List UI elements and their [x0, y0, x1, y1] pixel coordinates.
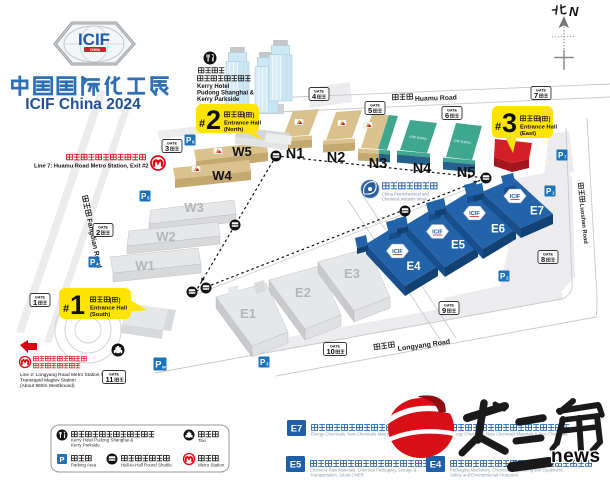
svg-text:E2: E2	[295, 285, 311, 300]
svg-text:P: P	[155, 360, 161, 370]
svg-text:3: 3	[165, 144, 169, 153]
svg-text:Chemical Industry Week: Chemical Industry Week	[382, 197, 428, 202]
svg-text:Transrapid Maglev Station: Transrapid Maglev Station	[20, 378, 76, 384]
svg-text:W1: W1	[135, 258, 155, 273]
svg-text:(: (	[110, 298, 112, 304]
svg-text:3: 3	[502, 108, 517, 138]
svg-text:W4: W4	[212, 168, 232, 183]
svg-text:E7: E7	[530, 206, 544, 218]
svg-text:P: P	[59, 455, 64, 464]
svg-text:N: N	[569, 4, 579, 19]
svg-text:Safety and Environmental Prote: Safety and Environmental Protection.	[450, 473, 519, 478]
svg-text:E4: E4	[406, 261, 421, 273]
svg-text:E6: E6	[491, 224, 505, 236]
svg-text:7: 7	[534, 91, 538, 100]
svg-text:11: 11	[106, 375, 114, 384]
svg-text:Metro Station: Metro Station	[198, 463, 225, 468]
svg-text:1: 1	[70, 290, 85, 320]
svg-text:E4: E4	[430, 460, 442, 471]
svg-text:Huamu Road: Huamu Road	[415, 95, 457, 103]
svg-text:#: #	[495, 121, 501, 133]
svg-text:): )	[549, 117, 551, 123]
svg-text:(East): (East)	[520, 131, 536, 137]
svg-text:W3: W3	[184, 200, 204, 215]
svg-text:E3: E3	[344, 266, 360, 281]
svg-text:W2: W2	[156, 229, 176, 244]
svg-text:5: 5	[368, 106, 372, 115]
svg-text:): )	[119, 298, 121, 304]
svg-text:Kerry Parkside: Kerry Parkside	[71, 443, 100, 448]
svg-text:Pudong Shanghai &: Pudong Shanghai &	[197, 91, 255, 97]
svg-text:E7: E7	[291, 424, 303, 435]
svg-text:#: #	[63, 303, 69, 315]
svg-text:2: 2	[96, 228, 100, 237]
svg-text:P: P	[546, 187, 551, 196]
svg-text:W5: W5	[232, 144, 252, 159]
svg-text:P: P	[558, 151, 563, 160]
svg-text:E1: E1	[240, 306, 256, 321]
svg-text:Taxi: Taxi	[198, 438, 206, 443]
svg-text:): )	[253, 113, 255, 119]
svg-text:(About 960m Westbound): (About 960m Westbound)	[20, 383, 75, 389]
svg-text:2: 2	[206, 105, 221, 135]
svg-text:w: w	[161, 365, 166, 370]
svg-text:E5: E5	[290, 460, 302, 471]
svg-text:6: 6	[445, 111, 449, 120]
svg-text:P: P	[260, 358, 265, 367]
svg-text:1: 1	[33, 298, 37, 307]
svg-text:E5: E5	[451, 240, 466, 252]
svg-text:N4: N4	[413, 161, 432, 177]
svg-text:(South): (South)	[90, 312, 110, 318]
svg-text:Entrance Hall: Entrance Hall	[520, 125, 557, 131]
svg-text:P: P	[90, 258, 95, 267]
svg-text:ICIF China 2024: ICIF China 2024	[25, 96, 141, 113]
svg-text:Transportation, Smart CMER: Transportation, Smart CMER	[310, 473, 364, 478]
svg-text:N2: N2	[327, 150, 346, 166]
svg-text:(North): (North)	[224, 127, 243, 133]
svg-text:P: P	[500, 272, 505, 281]
svg-text:Hall-to-Hall Round Shuttle: Hall-to-Hall Round Shuttle	[121, 463, 172, 468]
svg-text:N3: N3	[369, 156, 388, 172]
svg-text:Entrance Hall: Entrance Hall	[224, 121, 261, 127]
svg-text:N1: N1	[286, 146, 305, 162]
svg-text:Energy Chemicals, New Chemical: Energy Chemicals, New Chemicals Material…	[450, 432, 568, 437]
svg-text:(: (	[244, 113, 246, 119]
svg-text:10: 10	[327, 347, 335, 356]
svg-text:Line 7: Huamu Road Metro Stati: Line 7: Huamu Road Metro Station, Exit #…	[34, 164, 148, 170]
svg-text:Kerry Parkside: Kerry Parkside	[197, 97, 240, 103]
svg-text:8: 8	[541, 255, 545, 264]
svg-text:ICIF: ICIF	[78, 30, 110, 49]
svg-text:Kerry Hotel: Kerry Hotel	[197, 84, 230, 90]
svg-text:#: #	[199, 118, 205, 130]
svg-text:news: news	[551, 446, 601, 467]
svg-text:P: P	[186, 136, 191, 145]
svg-text:(: (	[540, 117, 542, 123]
svg-text:9: 9	[442, 306, 446, 315]
svg-text:Line 2: Longyang Road Metro St: Line 2: Longyang Road Metro Station /	[20, 372, 103, 378]
svg-text:N5: N5	[457, 165, 476, 181]
svg-text:Parking Area: Parking Area	[71, 463, 97, 468]
svg-text:P: P	[141, 192, 146, 201]
svg-text:Entrance Hall: Entrance Hall	[90, 306, 127, 312]
svg-text:CHINA: CHINA	[90, 48, 101, 52]
